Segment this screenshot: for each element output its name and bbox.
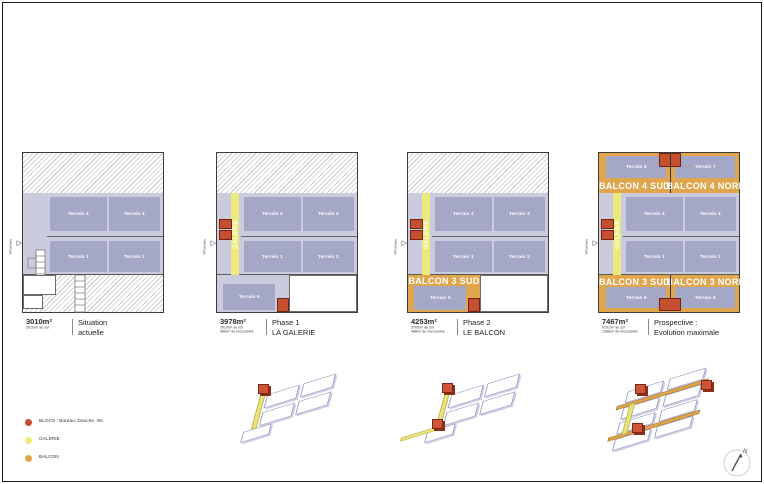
bloc-cube <box>601 219 614 229</box>
terrain-4-zone: Terrain 4 <box>626 197 683 231</box>
plan-title: Situation actuelle <box>78 318 107 338</box>
hall-divider-line <box>432 236 548 237</box>
galerie-strip: GALERIE <box>613 193 621 276</box>
bloc-cube-3d <box>442 383 453 393</box>
bloc-cube <box>410 230 423 240</box>
terrain-2-zone: Terrain 2 <box>109 241 160 272</box>
annex-stair-drawing <box>73 275 87 313</box>
plan-title: Prospective : Evolution maximale <box>654 318 719 338</box>
caption-divider <box>266 319 267 335</box>
terrain-6-zone: Terrain 6 <box>675 287 735 308</box>
terrain-5-label: Terrain 5 <box>430 296 451 301</box>
bloc-cube <box>659 298 681 311</box>
empty-room <box>480 275 548 312</box>
entrance-arrow-icon: ▷ <box>402 240 407 247</box>
annex-room <box>23 275 56 295</box>
terrain-4-label: Terrain 4 <box>68 212 89 217</box>
balcon-4-sud-label: BALCON 4 SUD <box>599 180 670 191</box>
terrain-4-zone: Terrain 4 <box>244 197 301 231</box>
hall-divider-line <box>241 236 357 237</box>
caption-plan-2: 3978m² 3010m² au sol 968m² de mezzanine … <box>220 318 370 340</box>
caption-plan-1: 3010m² 3010m² au sol Situation actuelle <box>26 318 176 333</box>
terrain-2-zone: Terrain 2 <box>303 241 354 272</box>
plan-title-line1: Phase 1 <box>272 318 315 328</box>
north-label: N <box>743 449 748 455</box>
terrain-7-label: Terrain 7 <box>695 165 716 170</box>
plan-situation-actuelle: Terrain 4 Terrain 3 Terrain 1 Terrain 2 … <box>22 152 164 313</box>
entrance-arrow-icon: ▷ <box>211 240 216 247</box>
bloc-cube-3d <box>701 380 712 390</box>
terrain-8-zone: Terrain 8 <box>606 156 666 178</box>
terrain-3-label: Terrain 3 <box>700 212 721 217</box>
terrain-3-zone: Terrain 3 <box>494 197 545 231</box>
axonometric-prospective-drawing <box>588 366 738 454</box>
balcon-3-sud-label: BALCON 3 SUD <box>599 276 670 287</box>
entrance-arrow-icon: ▷ <box>17 240 22 247</box>
galerie-label: GALERIE <box>614 220 620 249</box>
terrain-4-label: Terrain 4 <box>262 212 283 217</box>
bloc-cube <box>468 298 480 312</box>
terrain-1-zone: Terrain 1 <box>435 241 492 272</box>
hall-divider-line <box>47 236 163 237</box>
caption-divider <box>457 319 458 335</box>
terrain-3-label: Terrain 3 <box>124 212 145 217</box>
terrain-2-zone: Terrain 2 <box>494 241 545 272</box>
plan-title-line2: LA GALERIE <box>272 328 315 338</box>
terrain-3-label: Terrain 3 <box>509 212 530 217</box>
legend-galerie-label: GALERIE <box>39 437 60 442</box>
caption-plan-3: 4253m² 3765m² au sol 488m² de mezzanine … <box>411 318 561 340</box>
balcon-dot-icon <box>25 455 32 462</box>
annex-room-small <box>23 295 43 309</box>
terrain-5-label: Terrain 5 <box>626 295 647 300</box>
terrain-5-zone: Terrain 5 <box>606 287 666 308</box>
terrain-4-label: Terrain 4 <box>644 212 665 217</box>
entrance-arrow-icon: ▷ <box>593 240 598 247</box>
terrain-2-zone: Terrain 2 <box>685 241 736 272</box>
blocs-dot-icon <box>25 419 32 426</box>
plan-phase-2-le-balcon: Terrain 4 Terrain 3 Terrain 1 Terrain 2 … <box>407 152 549 313</box>
terrain-1-zone: Terrain 1 <box>50 241 107 272</box>
galerie-label: GALERIE <box>423 220 429 249</box>
terrain-1-zone: Terrain 1 <box>244 241 301 272</box>
terrain-6-label: Terrain 6 <box>695 295 716 300</box>
terrain-1-label: Terrain 1 <box>644 254 665 259</box>
entrance-marker: TOPTEN Entrée ▷ <box>202 229 217 259</box>
terrain-2-label: Terrain 2 <box>318 254 339 259</box>
terrain-3-zone: Terrain 3 <box>303 197 354 231</box>
axon-board <box>420 372 524 445</box>
terrain-1-label: Terrain 1 <box>453 254 474 259</box>
axonometric-phase-2-drawing <box>408 372 528 450</box>
terrain-5-zone: Terrain 5 <box>414 286 466 310</box>
storage-hatch-zone <box>408 153 548 194</box>
entrance-marker-label: TOPTEN Entrée <box>586 239 589 255</box>
galerie-label: GALERIE <box>232 220 238 249</box>
bloc-cube-3d <box>632 423 643 433</box>
bloc-cube <box>219 230 232 240</box>
entrance-marker: TOPTEN Entrée ▷ <box>393 229 408 259</box>
galerie-dot-icon <box>25 437 32 444</box>
bloc-cube-3d <box>258 384 269 394</box>
terrain-3-zone: Terrain 3 <box>109 197 160 231</box>
caption-divider <box>72 319 73 335</box>
plan-title-line1: Prospective : <box>654 318 719 328</box>
balcon-3-sud-label: BALCON 3 SUD <box>408 275 480 286</box>
hall-divider-line <box>623 236 739 237</box>
legend-blocs-label: BLOCS : Bureau, Douche, Wc <box>39 419 104 424</box>
plan-title-line2: actuelle <box>78 328 107 338</box>
caption-divider <box>648 319 649 335</box>
bloc-cube <box>601 230 614 240</box>
axon-board <box>236 372 340 445</box>
terrain-2-label: Terrain 2 <box>509 254 530 259</box>
plan-title-line2: LE BALCON <box>463 328 505 338</box>
storage-hatch-zone <box>23 153 163 194</box>
terrain-8-label: Terrain 8 <box>626 165 647 170</box>
terrain-1-zone: Terrain 1 <box>626 241 683 272</box>
terrain-5-zone: Terrain 5 <box>223 284 275 310</box>
balcon-4-nord-label: BALCON 4 NORD <box>671 180 741 191</box>
empty-room <box>289 275 357 312</box>
balcon-3-nord-label: BALCON 3 NORD <box>671 276 741 287</box>
legend-balcon-label: BALCON <box>39 455 59 460</box>
terrain-7-zone: Terrain 7 <box>675 156 735 178</box>
drawing-sheet: Terrain 4 Terrain 3 Terrain 1 Terrain 2 … <box>0 0 764 484</box>
terrain-1-label: Terrain 1 <box>68 254 89 259</box>
plan-title-line1: Situation <box>78 318 107 328</box>
galerie-strip: GALERIE <box>231 193 239 276</box>
plan-title: Phase 2 LE BALCON <box>463 318 505 338</box>
north-arrow: N <box>720 443 756 479</box>
plan-title: Phase 1 LA GALERIE <box>272 318 315 338</box>
terrain-5-label: Terrain 5 <box>239 295 260 300</box>
plan-prospective-evolution-maximale: Terrain 8 Terrain 7 BALCON 4 SUD BALCON … <box>598 152 740 313</box>
terrain-2-label: Terrain 2 <box>124 254 145 259</box>
entrance-marker-label: TOPTEN Entrée <box>204 239 207 255</box>
terrain-1-label: Terrain 1 <box>262 254 283 259</box>
entrance-marker: TOPTEN Entrée ▷ <box>8 229 23 259</box>
terrain-3-zone: Terrain 3 <box>685 197 736 231</box>
plan-title-line2: Evolution maximale <box>654 328 719 338</box>
entrance-marker: TOPTEN Entrée ▷ <box>584 229 599 259</box>
bloc-cube <box>277 298 289 312</box>
terrain-4-zone: Terrain 4 <box>50 197 107 231</box>
terrain-2-label: Terrain 2 <box>700 254 721 259</box>
entrance-marker-label: TOPTEN Entrée <box>10 239 13 255</box>
entrance-marker-label: TOPTEN Entrée <box>395 239 398 255</box>
terrain-4-label: Terrain 4 <box>453 212 474 217</box>
axonometric-phase-1-drawing <box>232 374 347 444</box>
plan-title-line1: Phase 2 <box>463 318 505 328</box>
terrain-4-zone: Terrain 4 <box>435 197 492 231</box>
bloc-cube <box>410 219 423 229</box>
terrain-3-label: Terrain 3 <box>318 212 339 217</box>
galerie-strip: GALERIE <box>422 193 430 276</box>
storage-hatch-zone <box>217 153 357 194</box>
bloc-cube <box>219 219 232 229</box>
axon-board <box>604 366 712 454</box>
caption-plan-4: 7467m² 6101m² au sol 1366m² de mezzanine… <box>602 318 752 340</box>
bloc-cube-3d <box>432 419 443 429</box>
plan-phase-1-la-galerie: Terrain 4 Terrain 3 Terrain 1 Terrain 2 … <box>216 152 358 313</box>
bloc-cube-3d <box>635 384 646 394</box>
